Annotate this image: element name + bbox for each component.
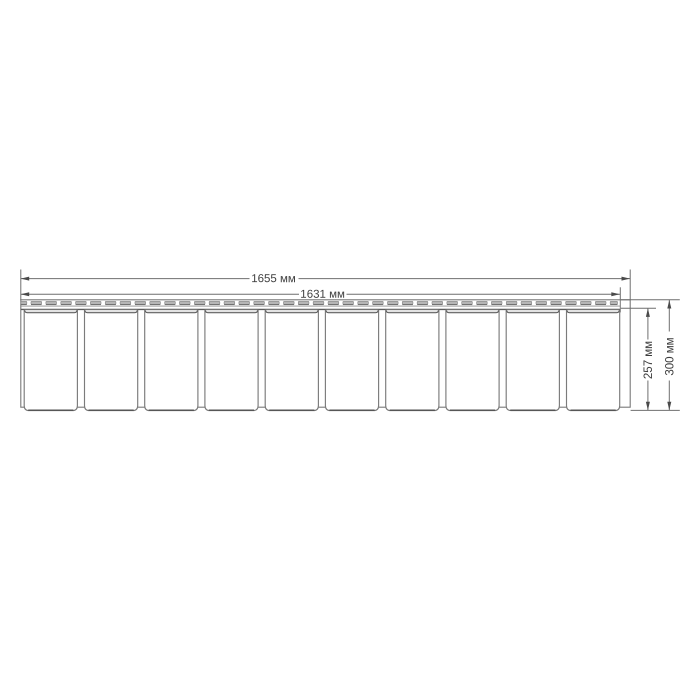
- svg-text:1655 мм: 1655 мм: [251, 273, 296, 285]
- svg-text:300 мм: 300 мм: [664, 337, 676, 375]
- svg-text:257 мм: 257 мм: [643, 341, 655, 379]
- svg-text:1631 мм: 1631 мм: [300, 289, 345, 301]
